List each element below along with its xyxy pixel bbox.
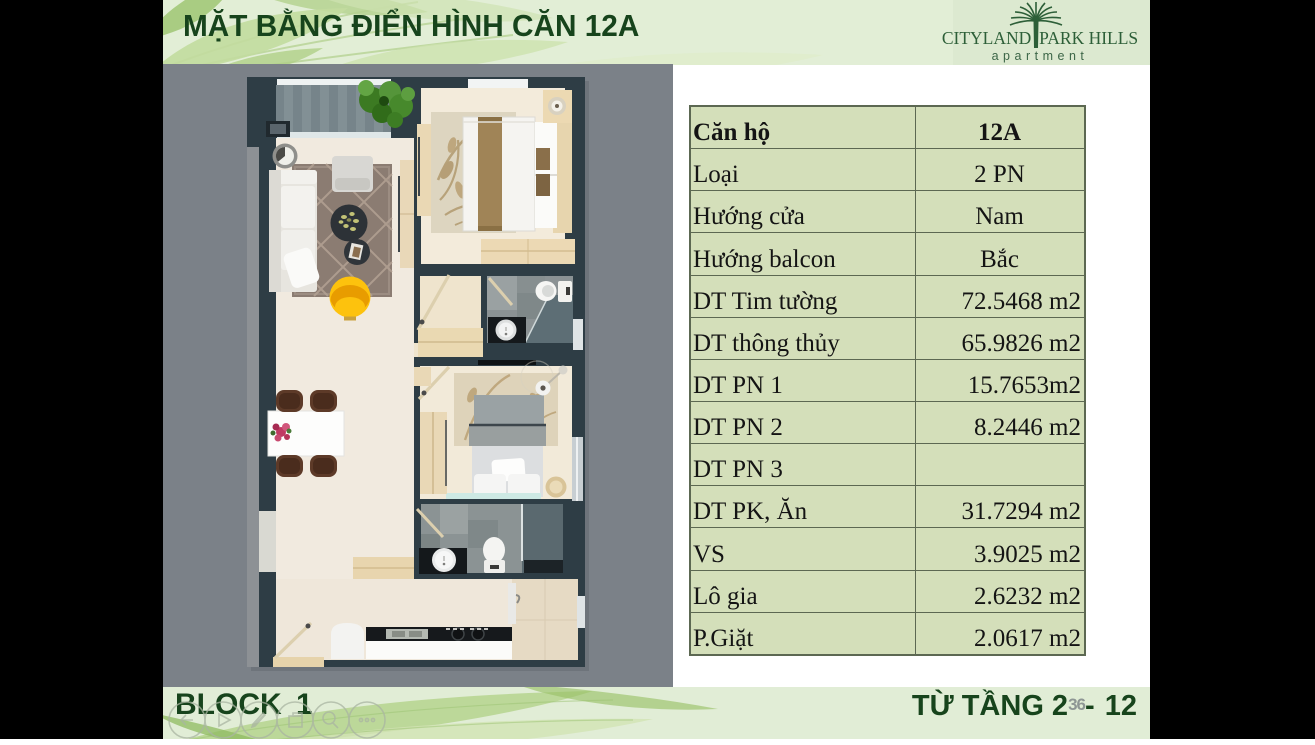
svg-text:CITYLAND PARK HILLS: CITYLAND PARK HILLS	[942, 28, 1138, 48]
svg-text:apartment: apartment	[992, 49, 1089, 63]
